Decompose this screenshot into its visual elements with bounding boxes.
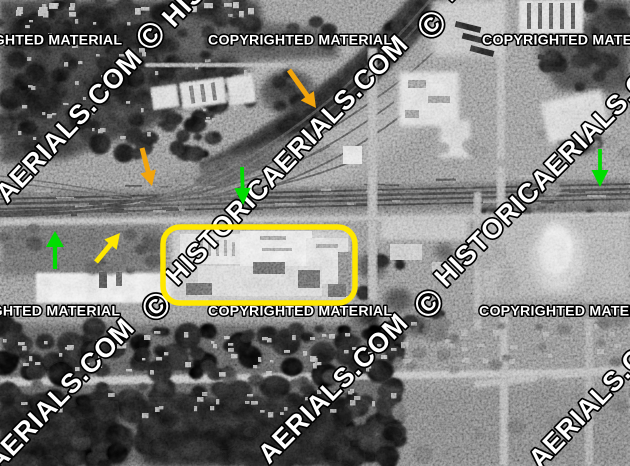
- svg-text:COPYRIGHTED MATERIAL: COPYRIGHTED MATERIAL: [208, 33, 392, 49]
- svg-text:COPYRIGHTED MATERIAL: COPYRIGHTED MATERIAL: [482, 33, 630, 49]
- svg-text:COPYRIGHTED MATERIAL: COPYRIGHTED MATERIAL: [479, 304, 630, 320]
- svg-text:COPYRIGHTED MATERIAL: COPYRIGHTED MATERIAL: [0, 33, 122, 49]
- svg-text:COPYRIGHTED MATERIAL: COPYRIGHTED MATERIAL: [208, 304, 392, 320]
- svg-text:COPYRIGHTED MATERIAL: COPYRIGHTED MATERIAL: [0, 304, 120, 320]
